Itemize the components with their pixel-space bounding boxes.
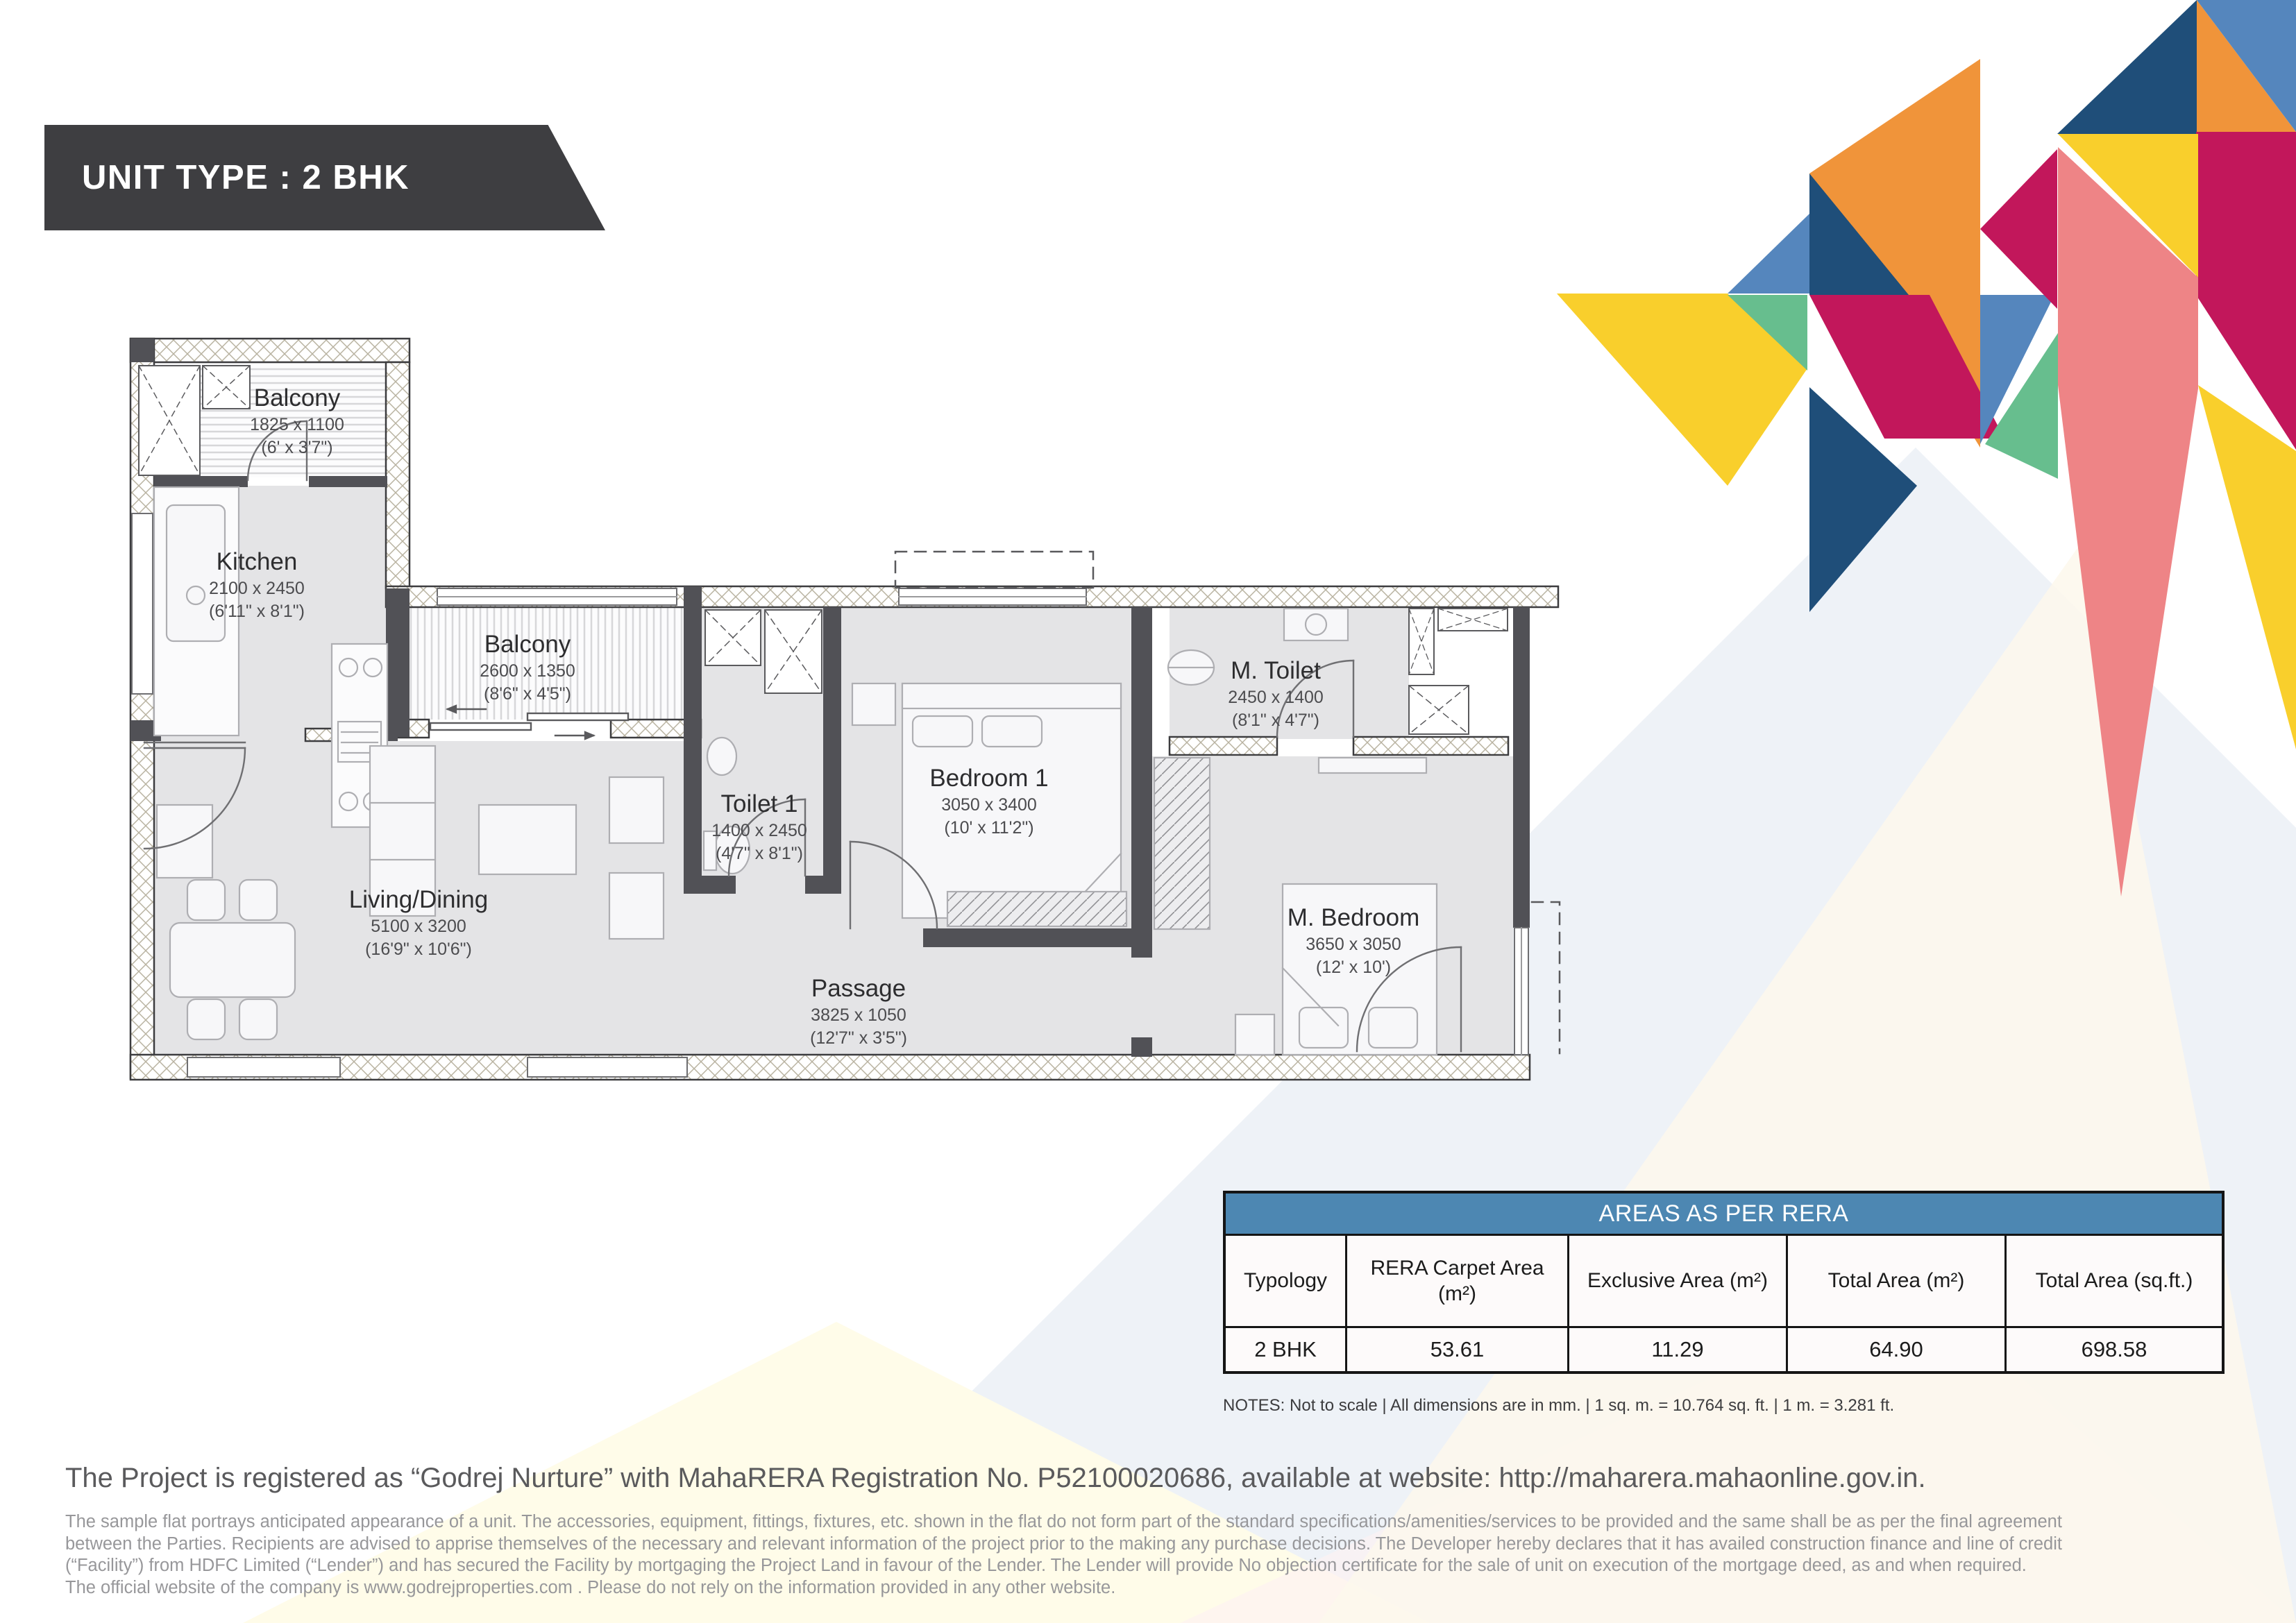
col-header-typology: Typology <box>1226 1236 1347 1328</box>
floor-plan <box>130 339 1560 1080</box>
decor-crimson-wedge <box>1980 149 2057 309</box>
areas-table-title: AREAS AS PER RERA <box>1226 1193 2222 1236</box>
armchair <box>609 873 664 939</box>
pillow <box>1299 1008 1348 1048</box>
brochure-page: UNIT TYPE : 2 BHK Balcony 1825 x 1100 (6… <box>0 0 2296 1623</box>
toilet1-basin <box>707 738 736 775</box>
cell-total-m2: 64.90 <box>1788 1328 2007 1371</box>
shower-box <box>765 610 822 693</box>
shower-box <box>705 610 761 665</box>
areas-table-row: 2 BHK 53.61 11.29 64.90 698.58 <box>1226 1328 2222 1371</box>
duct-box <box>1409 609 1434 674</box>
decor-yellow-lower <box>2198 385 2296 749</box>
table-notes: NOTES: Not to scale | All dimensions are… <box>1223 1396 1894 1416</box>
col-header-rera-carpet: RERA Carpet Area (m²) <box>1347 1236 1569 1328</box>
dining-chair <box>239 999 277 1039</box>
dashed-projection-top <box>895 552 1093 588</box>
living-window-2 <box>527 1057 687 1077</box>
cell-rera-carpet: 53.61 <box>1347 1328 1569 1371</box>
bedside-table <box>1235 1014 1274 1055</box>
bedside-table <box>852 683 895 725</box>
duct-box <box>139 366 200 475</box>
wardrobe2 <box>1154 758 1210 929</box>
decor-steel-small <box>1728 214 1809 294</box>
toilet1-wc <box>715 826 750 874</box>
col-header-exclusive: Exclusive Area (m²) <box>1569 1236 1788 1328</box>
dining-chair <box>187 999 225 1039</box>
unit-type-banner: UNIT TYPE : 2 BHK <box>44 125 605 230</box>
cell-typology: 2 BHK <box>1226 1328 1347 1371</box>
duct-box <box>203 366 250 409</box>
background-graphics <box>0 0 2296 1623</box>
col-header-total-m2: Total Area (m²) <box>1788 1236 2007 1328</box>
shower-box <box>1409 686 1469 734</box>
unit-type-title: UNIT TYPE : 2 BHK <box>44 158 410 197</box>
bed1-headboard <box>902 683 1121 708</box>
disclaimer-line: The sample flat portrays anticipated app… <box>65 1511 2062 1533</box>
armchair <box>609 777 664 843</box>
pillow <box>913 716 972 747</box>
kitchen-sink <box>167 505 225 641</box>
dining-chair <box>239 880 277 920</box>
disclaimer-line: between the Parties. Recipients are advi… <box>65 1533 2062 1556</box>
decor-navy-corner <box>2057 0 2197 134</box>
dining-chair <box>187 880 225 920</box>
wardrobe1 <box>947 892 1126 926</box>
disclaimer-paragraph: The sample flat portrays anticipated app… <box>65 1511 2062 1599</box>
living-window-1 <box>187 1057 340 1077</box>
duct-box <box>1438 609 1508 631</box>
rera-registration-line: The Project is registered as “Godrej Nur… <box>65 1463 1926 1494</box>
coffee-table <box>479 805 576 874</box>
kitchen-window <box>132 513 153 694</box>
areas-table-header: Typology RERA Carpet Area (m²) Exclusive… <box>1226 1236 2222 1328</box>
sofa <box>370 746 435 916</box>
toilet1-cistern <box>704 831 716 870</box>
pillow <box>982 716 1042 747</box>
pillow <box>1369 1008 1417 1048</box>
disclaimer-line: (“Facility”) from HDFC Limited (“Lender”… <box>65 1555 2062 1577</box>
dining-table <box>170 923 295 997</box>
col-header-total-sqft: Total Area (sq.ft.) <box>2007 1236 2222 1328</box>
disclaimer-line: The official website of the company is w… <box>65 1577 2062 1599</box>
cell-exclusive: 11.29 <box>1569 1328 1788 1371</box>
cell-total-sqft: 698.58 <box>2007 1328 2222 1371</box>
tv-unit <box>1319 758 1426 773</box>
balcony-mid-floor <box>410 607 684 720</box>
fridge <box>157 805 212 878</box>
areas-table: AREAS AS PER RERA Typology RERA Carpet A… <box>1223 1191 2225 1374</box>
